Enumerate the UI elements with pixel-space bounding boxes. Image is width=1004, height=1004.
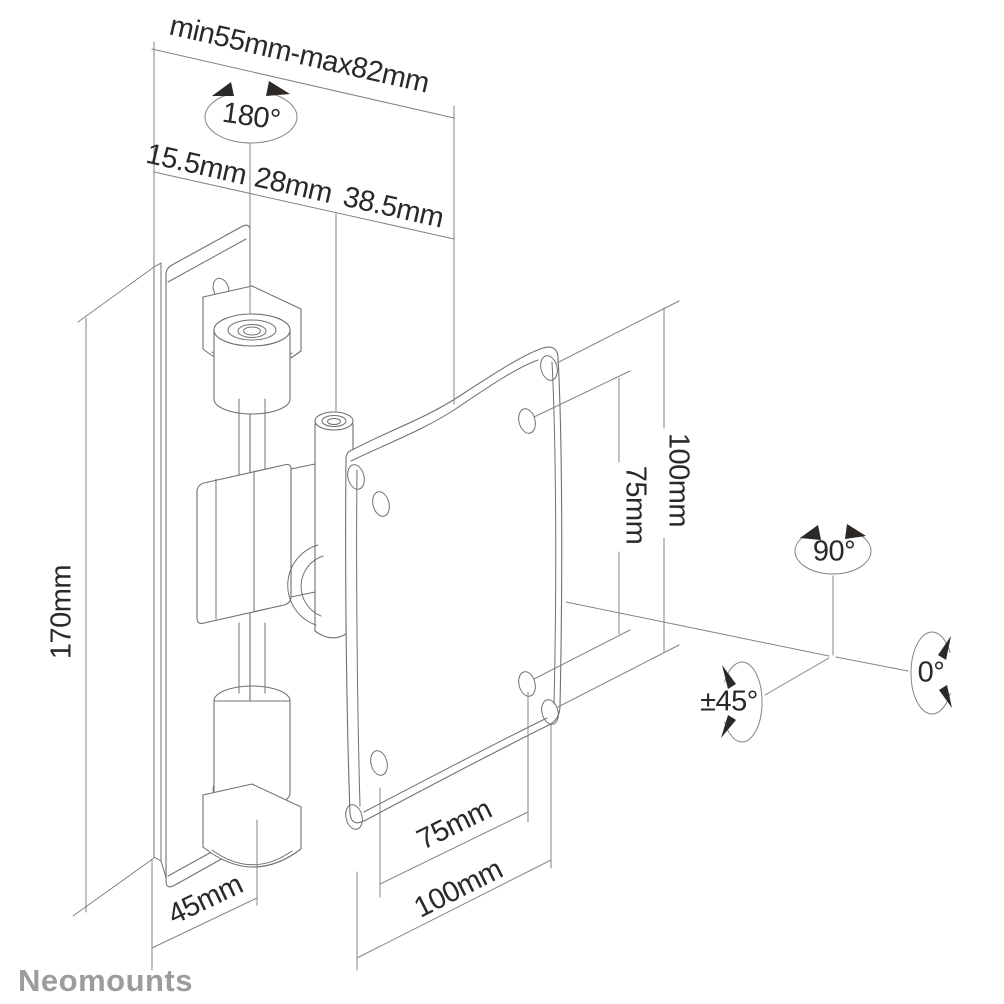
left-dimension: 170mm <box>46 267 154 916</box>
swivel-arrow-right <box>266 81 290 96</box>
vesa75-vertical-label: 75mm <box>619 466 651 545</box>
axis-line-to-tilt <box>765 658 829 695</box>
tilt-angle-label: ±45° <box>700 686 758 718</box>
ext-line-plate-bottom <box>73 858 154 916</box>
diagram-canvas: min55mm-max82mm 15.5mm 28mm 38.5mm 180° … <box>0 0 1004 1004</box>
vesa-plate <box>343 347 562 831</box>
pan-angle-label: 90° <box>813 536 855 568</box>
depth-segment-3-label: 38.5mm <box>340 181 446 235</box>
hinge-top-boss <box>214 314 290 346</box>
vesa75-horizontal-label: 75mm <box>412 793 497 856</box>
swivel-angle-label: 180° <box>220 97 282 137</box>
ext-lines-vesa100-vertical <box>557 301 679 707</box>
depth-range-label: min55mm-max82mm <box>167 10 432 100</box>
vesa100-horizontal-label: 100mm <box>409 853 508 924</box>
second-axis-boss <box>315 412 353 430</box>
hinge-mid-block <box>197 465 291 624</box>
tilt-arrow-bottom <box>721 715 736 738</box>
vesa-plate-face <box>346 347 562 823</box>
wall-plate-back-edge <box>154 263 167 881</box>
axis-line-to-roll <box>836 657 908 671</box>
ext-line-plate-top <box>78 267 154 322</box>
swivel-arrow-left <box>212 82 234 96</box>
roll-angle-label: 0° <box>918 657 945 689</box>
axis-line-to-plate <box>566 602 829 656</box>
depth-segment-1-label: 15.5mm <box>143 138 249 192</box>
brand-logo: Neomounts <box>18 963 193 998</box>
wall-mount-diagram: min55mm-max82mm 15.5mm 28mm 38.5mm 180° … <box>0 0 1004 1004</box>
plate-height-label: 170mm <box>46 565 78 659</box>
vesa100-vertical-label: 100mm <box>662 433 694 527</box>
hinge-assembly <box>197 286 353 867</box>
